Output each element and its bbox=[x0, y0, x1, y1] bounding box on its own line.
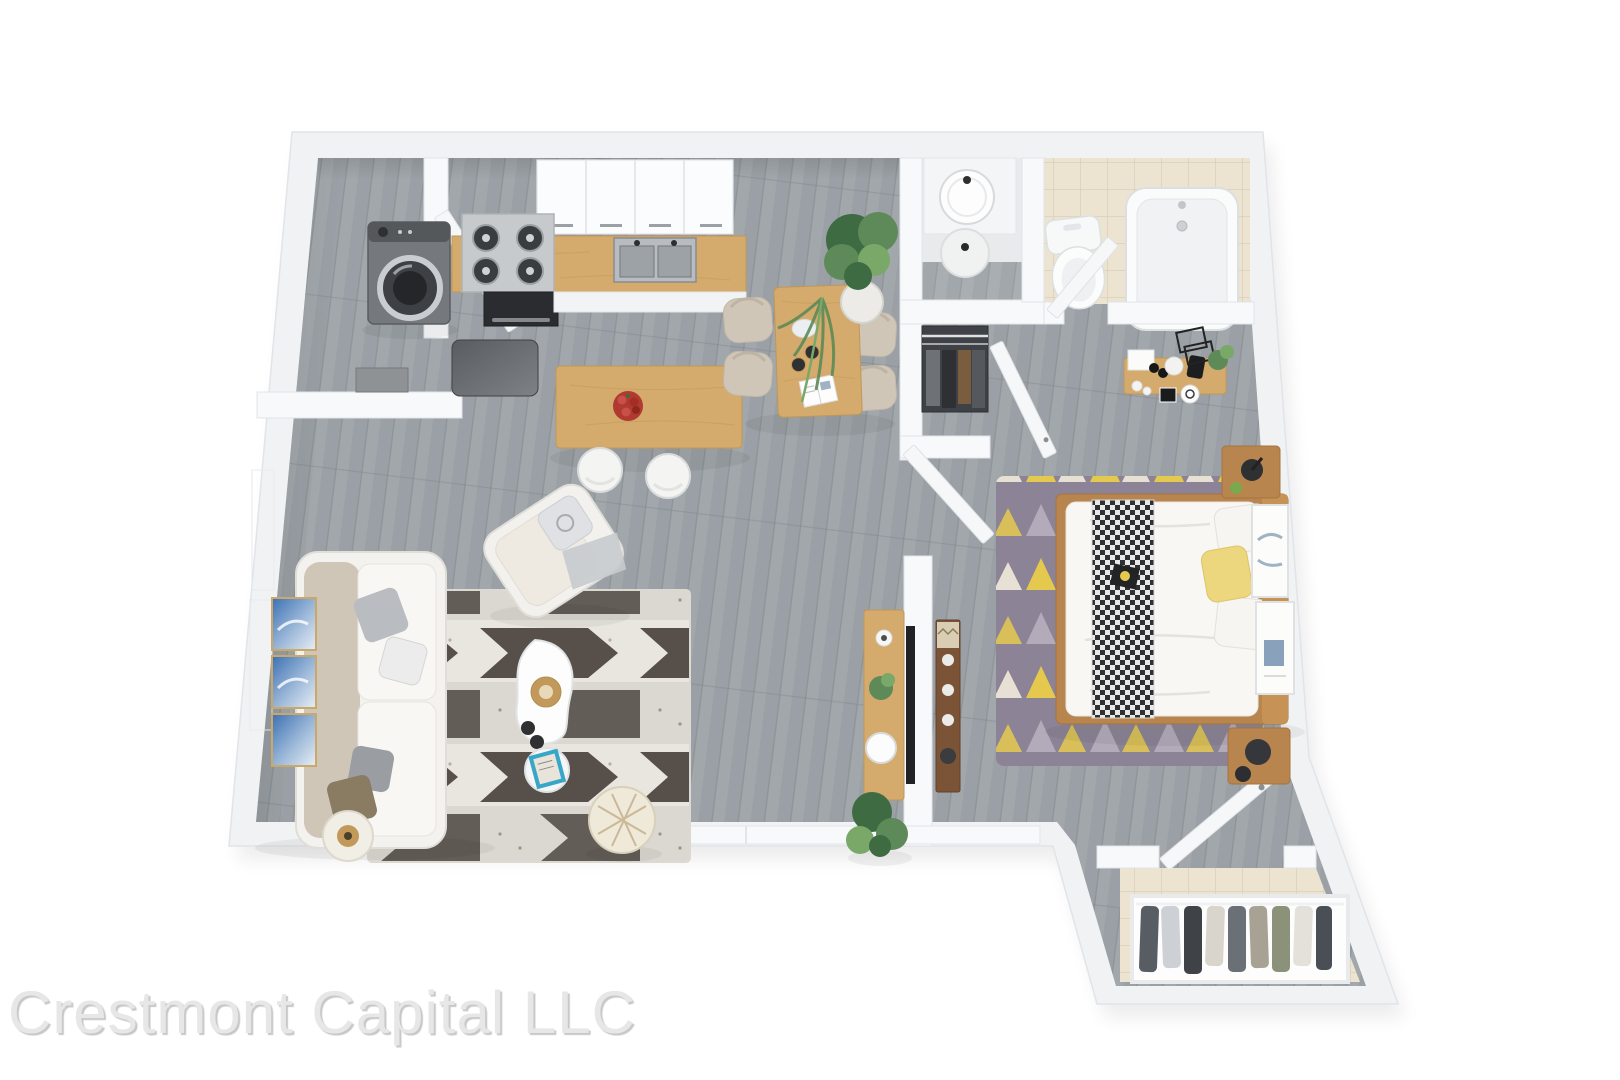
plant-cup-icon bbox=[1230, 482, 1242, 494]
stove bbox=[462, 214, 554, 292]
hall-closet bbox=[922, 326, 988, 412]
dresser bbox=[936, 620, 960, 792]
base-cabinets bbox=[554, 292, 746, 312]
bar-stool bbox=[646, 454, 690, 498]
round-stool bbox=[941, 229, 989, 277]
bowl bbox=[791, 357, 805, 371]
hanging-clothes bbox=[1139, 906, 1332, 974]
laundry-cabinet bbox=[356, 368, 408, 392]
picture-frame bbox=[1252, 505, 1288, 597]
floor-lamp bbox=[323, 811, 373, 861]
picture-frame bbox=[272, 656, 316, 708]
picture-frame bbox=[272, 598, 316, 650]
washer-knob-icon bbox=[378, 227, 388, 237]
bathroom-mid-wall bbox=[1022, 158, 1044, 302]
candle bbox=[530, 735, 544, 749]
decor-icon bbox=[942, 654, 954, 666]
decor-plate bbox=[1181, 385, 1199, 403]
dining-chair bbox=[723, 350, 774, 397]
closet-clothes bbox=[958, 350, 971, 404]
checkered-throw bbox=[1092, 500, 1154, 718]
bar-stool bbox=[578, 448, 622, 492]
kitchen-island bbox=[556, 366, 742, 448]
tv bbox=[906, 626, 915, 784]
bathroom-south-wall bbox=[900, 300, 1044, 324]
watermark: Crestmont Capital LLC bbox=[8, 978, 636, 1047]
oven-handle-icon bbox=[492, 318, 550, 322]
stool-detail bbox=[961, 243, 969, 251]
entry-wall-stub bbox=[1284, 846, 1316, 868]
cabinet-handle-icon bbox=[600, 224, 622, 227]
floor-plan-canvas bbox=[0, 0, 1620, 1080]
entry-wall bbox=[1097, 846, 1159, 868]
side-table bbox=[525, 748, 569, 792]
fruit-bowl bbox=[613, 391, 643, 421]
pouf bbox=[589, 787, 655, 853]
washing-machine bbox=[368, 222, 450, 324]
faucet-icon bbox=[671, 240, 677, 246]
laundry-bottom-wall bbox=[257, 392, 462, 418]
cabinet-handle-icon bbox=[700, 224, 722, 227]
tv-console bbox=[864, 610, 904, 800]
faucet-icon bbox=[634, 240, 640, 246]
decor-icon bbox=[942, 714, 954, 726]
dining-chair bbox=[723, 296, 774, 343]
nightstand bbox=[1222, 446, 1280, 498]
sofa bbox=[296, 552, 446, 848]
refrigerator bbox=[452, 340, 538, 396]
floor-plan-image: Crestmont Capital LLC bbox=[0, 0, 1620, 1080]
hat-box bbox=[1165, 357, 1183, 375]
faucet-icon bbox=[963, 176, 971, 184]
cabinet-handle-icon bbox=[649, 224, 671, 227]
bowl bbox=[866, 733, 896, 763]
kitchen-sink bbox=[614, 238, 696, 282]
cosmetics bbox=[1149, 363, 1159, 373]
closet-clothes bbox=[942, 350, 956, 408]
candle bbox=[1132, 381, 1142, 391]
table-lamp-icon bbox=[1235, 766, 1251, 782]
tub-faucet-icon bbox=[1178, 201, 1186, 209]
decor-icon bbox=[940, 748, 956, 764]
wall-art bbox=[272, 598, 316, 766]
decor-icon bbox=[942, 684, 954, 696]
closet-clothes bbox=[972, 350, 985, 408]
drain-icon bbox=[1177, 221, 1187, 231]
nightstand bbox=[1228, 728, 1290, 784]
accent-pillow bbox=[1200, 544, 1254, 603]
coffee-table bbox=[516, 640, 572, 749]
candle bbox=[521, 721, 535, 735]
oven bbox=[484, 292, 558, 326]
bedroom-north-wall bbox=[1108, 302, 1254, 324]
picture-frame bbox=[272, 714, 316, 766]
candle bbox=[1143, 387, 1151, 395]
upper-cabinets bbox=[537, 160, 733, 234]
small-frame bbox=[1160, 388, 1176, 402]
speaker-icon bbox=[1245, 739, 1271, 765]
open-wardrobe bbox=[1132, 896, 1348, 982]
closet-clothes bbox=[926, 350, 940, 406]
